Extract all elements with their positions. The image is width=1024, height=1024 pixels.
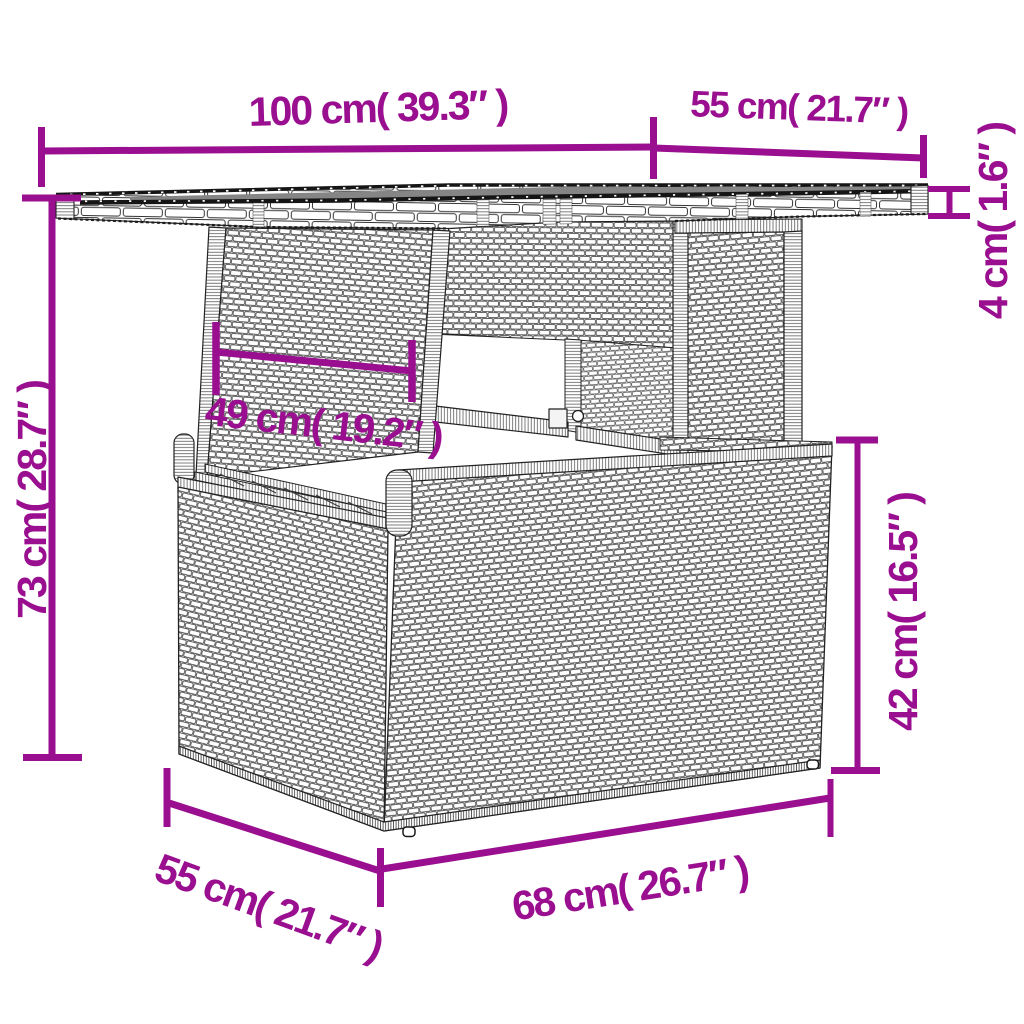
svg-text:42 cm( 16.5″ ): 42 cm( 16.5″ ): [880, 493, 926, 731]
svg-text:55 cm( 21.7″ ): 55 cm( 21.7″ ): [690, 83, 909, 132]
svg-text:4 cm( 1.6″ ): 4 cm( 1.6″ ): [970, 123, 1016, 320]
svg-text:100 cm( 39.3″ ): 100 cm( 39.3″ ): [248, 81, 508, 135]
svg-text:73 cm( 28.7″ ): 73 cm( 28.7″ ): [9, 381, 55, 619]
